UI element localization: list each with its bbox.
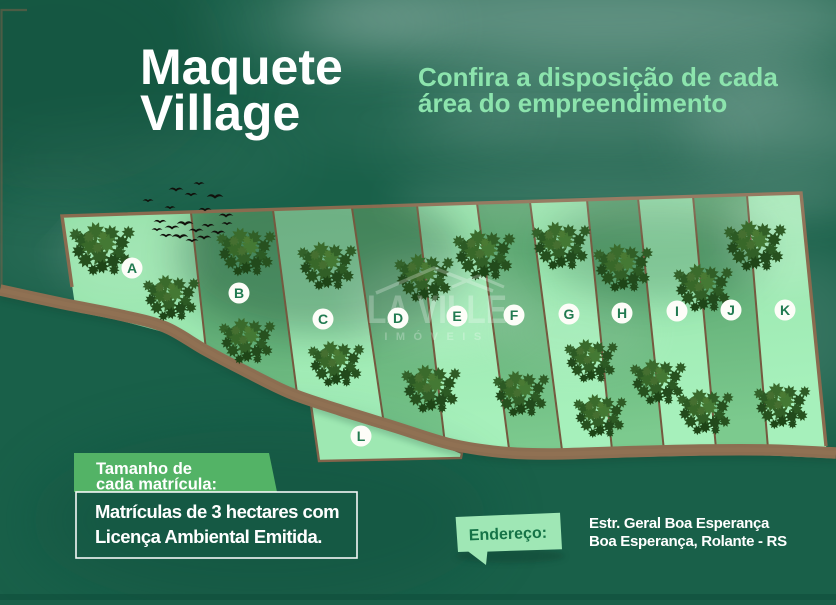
svg-text:K: K <box>780 302 790 318</box>
svg-text:área do empreendimento: área do empreendimento <box>418 88 727 118</box>
svg-text:H: H <box>617 305 627 321</box>
svg-text:Estr. Geral Boa Esperança: Estr. Geral Boa Esperança <box>589 515 770 532</box>
svg-text:Licença Ambiental Emitida.: Licença Ambiental Emitida. <box>95 526 322 547</box>
svg-text:F: F <box>510 307 519 323</box>
svg-text:E: E <box>452 308 461 324</box>
svg-text:L: L <box>357 428 366 444</box>
svg-text:D: D <box>393 310 403 326</box>
svg-text:B: B <box>234 285 244 301</box>
svg-text:Endereço:: Endereço: <box>469 525 548 545</box>
svg-text:Village: Village <box>140 85 300 141</box>
svg-text:C: C <box>318 311 328 327</box>
svg-text:J: J <box>727 302 735 318</box>
svg-text:G: G <box>564 306 575 322</box>
svg-text:I: I <box>675 303 679 319</box>
svg-text:Matrículas de 3 hectares com: Matrículas de 3 hectares com <box>95 501 339 522</box>
svg-text:cada matrícula:: cada matrícula: <box>96 476 217 494</box>
svg-text:LA VILLE: LA VILLE <box>367 288 507 332</box>
svg-text:IMÓVEIS: IMÓVEIS <box>384 330 489 343</box>
svg-text:A: A <box>127 260 137 276</box>
svg-text:Boa Esperança, Rolante - RS: Boa Esperança, Rolante - RS <box>589 533 787 550</box>
